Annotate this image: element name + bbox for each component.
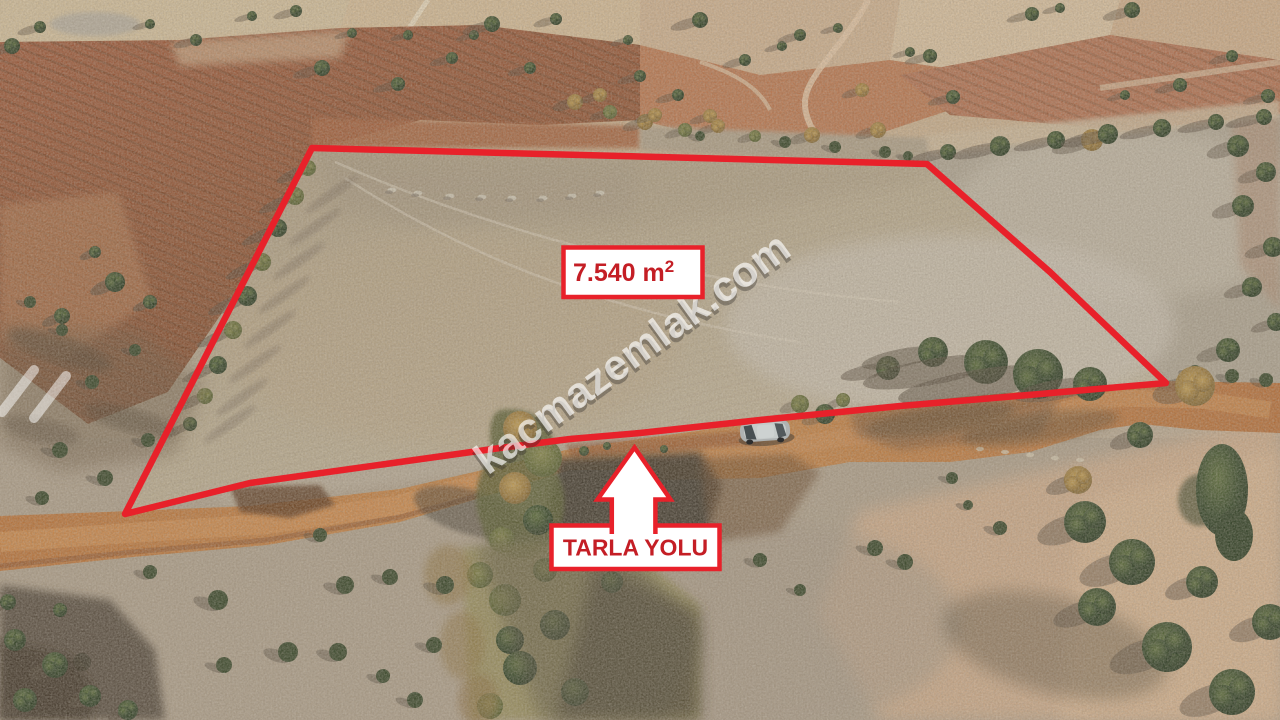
svg-text:7.540 m2: 7.540 m2 bbox=[573, 257, 674, 287]
svg-text:TARLA YOLU: TARLA YOLU bbox=[563, 535, 708, 561]
